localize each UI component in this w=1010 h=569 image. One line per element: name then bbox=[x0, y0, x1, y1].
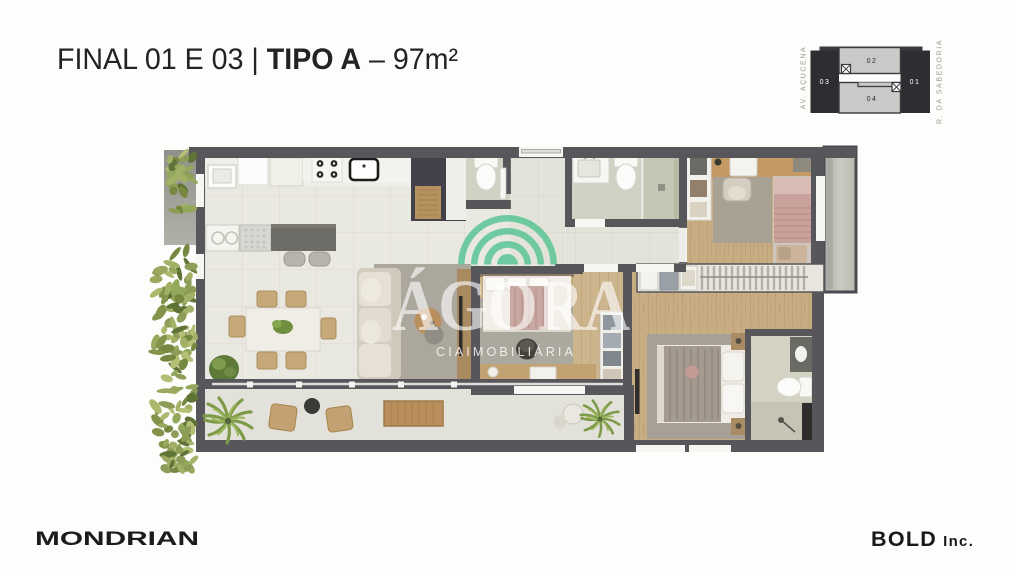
svg-text:FINAL 01 E 03 | TIPO A – 97m²: FINAL 01 E 03 | TIPO A – 97m² bbox=[57, 43, 458, 76]
svg-text:01: 01 bbox=[910, 79, 921, 86]
svg-text:AV. AÇUCENA: AV. AÇUCENA bbox=[801, 46, 808, 110]
svg-text:02: 02 bbox=[867, 58, 878, 65]
svg-text:03: 03 bbox=[820, 79, 831, 86]
svg-text:R. DA SABEDORIA: R. DA SABEDORIA bbox=[937, 39, 944, 124]
svg-text:BOLDInc.: BOLDInc. bbox=[871, 527, 974, 551]
svg-text:04: 04 bbox=[867, 96, 878, 103]
svg-text:ÁGORA: ÁGORA bbox=[392, 265, 630, 346]
svg-text:CIAIMOBILIÁRIA: CIAIMOBILIÁRIA bbox=[436, 344, 576, 359]
svg-text:MONDRIAN: MONDRIAN bbox=[35, 529, 199, 550]
